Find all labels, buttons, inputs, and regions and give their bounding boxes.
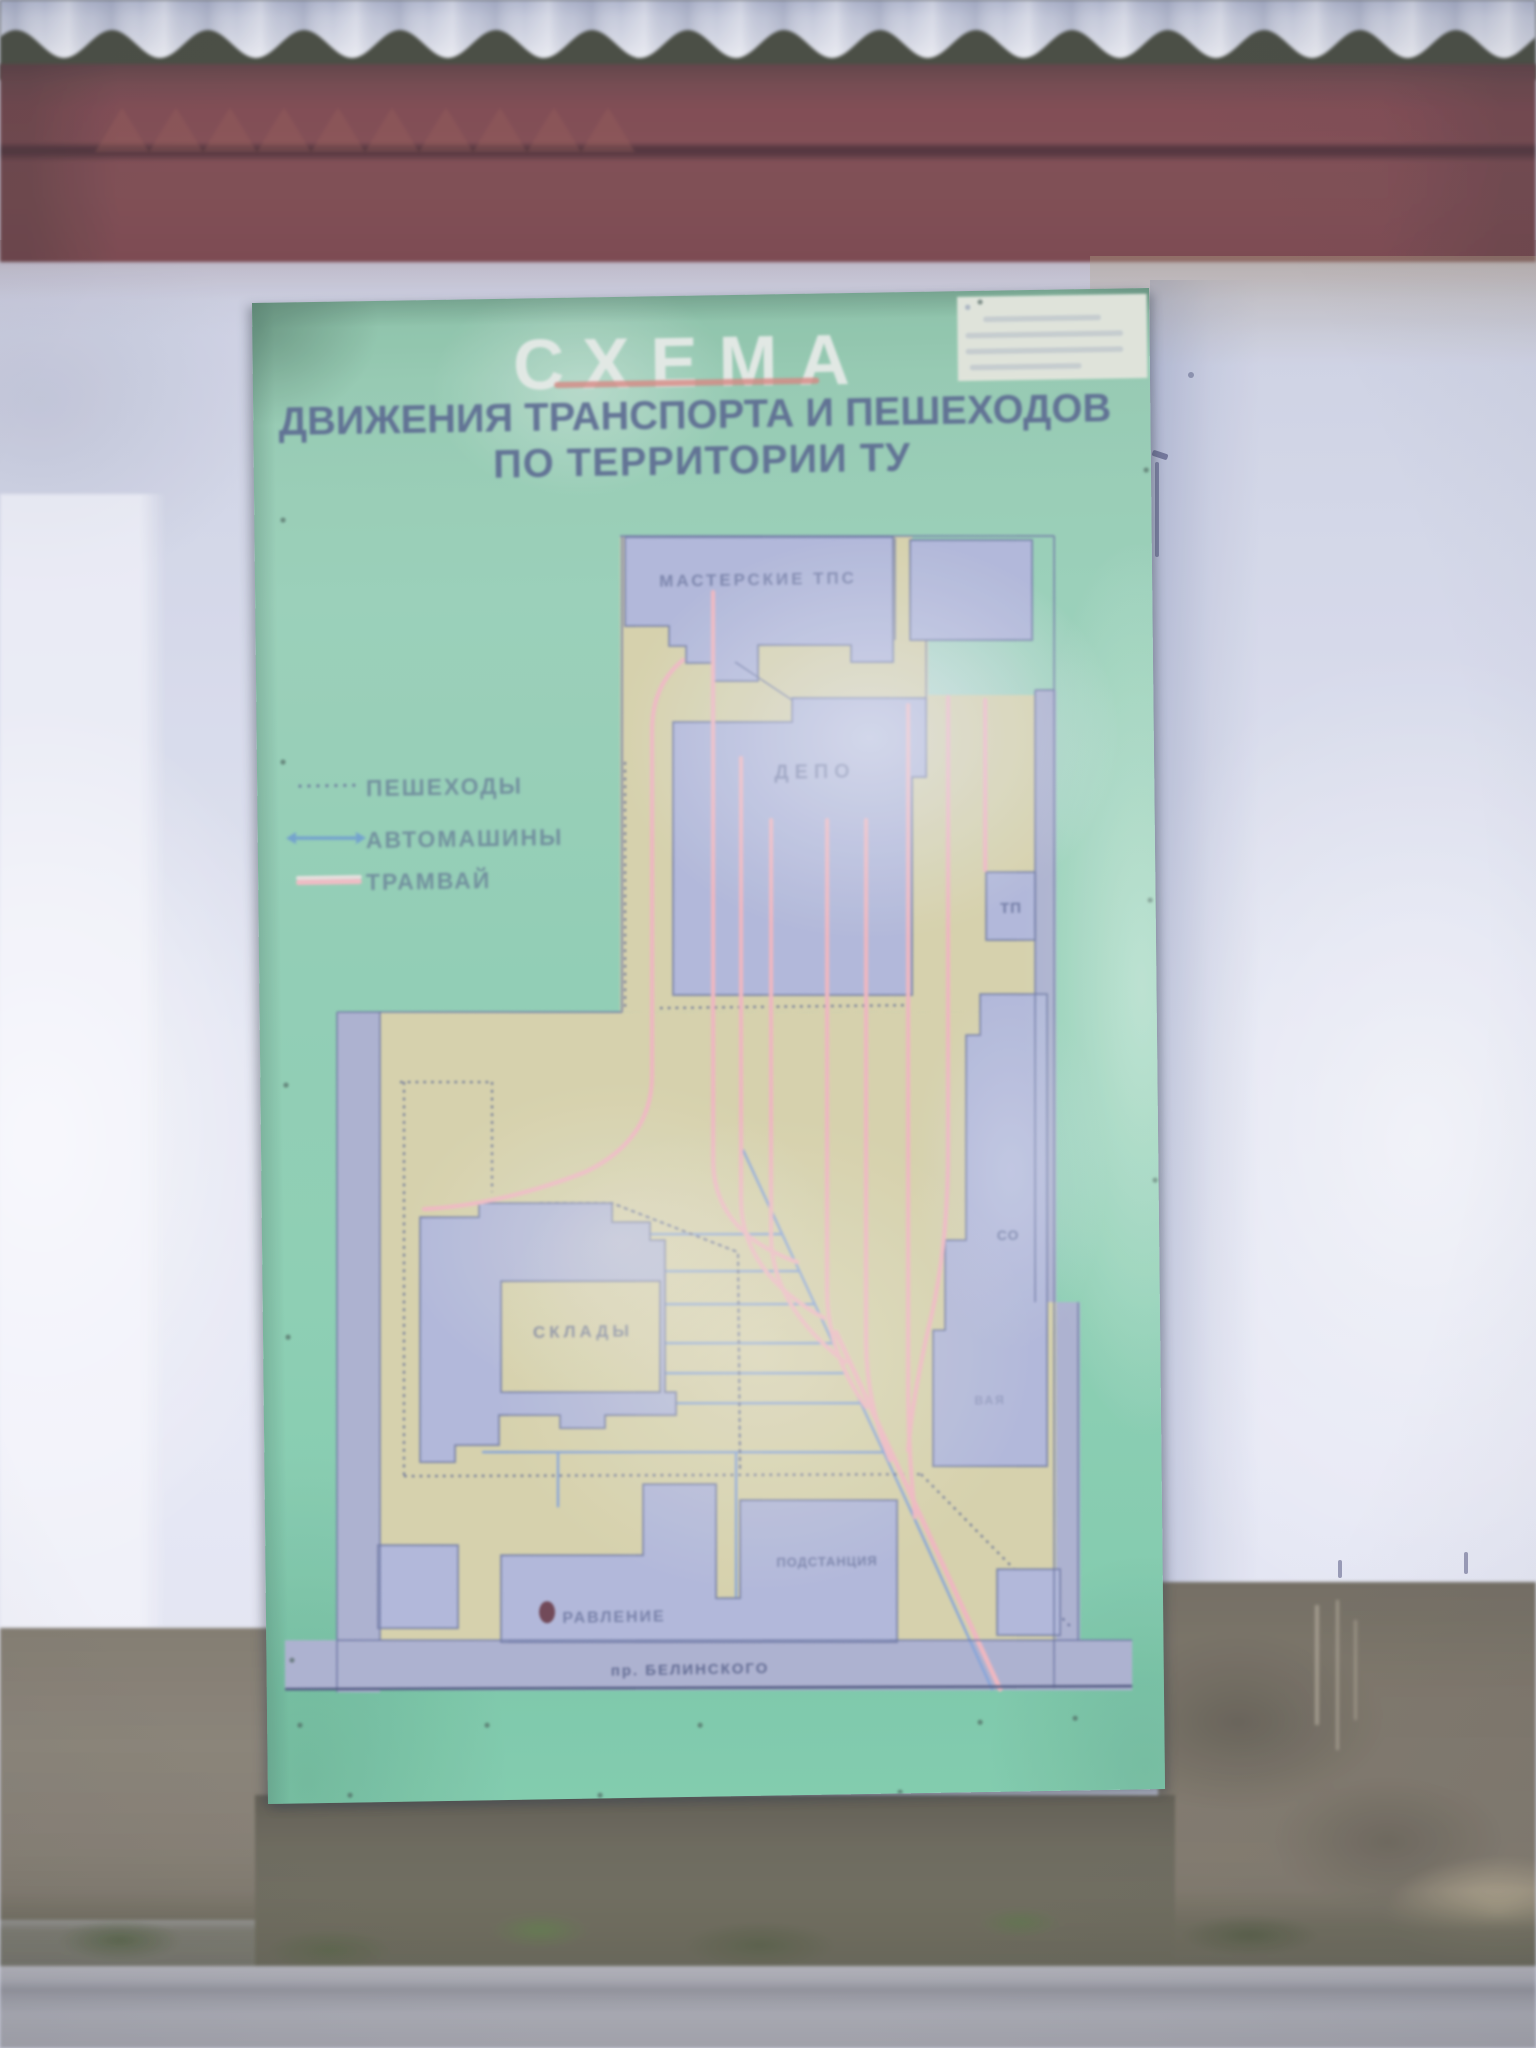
svg-text:ПЕШЕХОДЫ: ПЕШЕХОДЫ: [366, 772, 523, 801]
svg-text:ПО ТЕРРИТОРИИ ТУ: ПО ТЕРРИТОРИИ ТУ: [493, 435, 911, 486]
svg-text:ВАЯ: ВАЯ: [974, 1393, 1005, 1408]
svg-text:РАВЛЕНИЕ: РАВЛЕНИЕ: [562, 1608, 665, 1627]
svg-text:МАСТЕРСКИЕ ТПС: МАСТЕРСКИЕ ТПС: [659, 568, 857, 590]
svg-text:ТП: ТП: [1000, 900, 1022, 917]
svg-text:ДВИЖЕНИЯ ТРАНСПОРТА И ПЕШЕХОДО: ДВИЖЕНИЯ ТРАНСПОРТА И ПЕШЕХОДОВ: [278, 386, 1111, 444]
svg-text:пр. БЕЛИНСКОГО: пр. БЕЛИНСКОГО: [611, 1660, 770, 1680]
svg-text:СО: СО: [997, 1227, 1020, 1243]
svg-text:ТРАМВАЙ: ТРАМВАЙ: [366, 867, 492, 895]
svg-text:ДЕПО: ДЕПО: [774, 760, 855, 783]
svg-text:АВТОМАШИНЫ: АВТОМАШИНЫ: [366, 824, 564, 853]
svg-text:СКЛАДЫ: СКЛАДЫ: [533, 1321, 633, 1342]
svg-text:ПОДСТАНЦИЯ: ПОДСТАНЦИЯ: [776, 1553, 877, 1570]
